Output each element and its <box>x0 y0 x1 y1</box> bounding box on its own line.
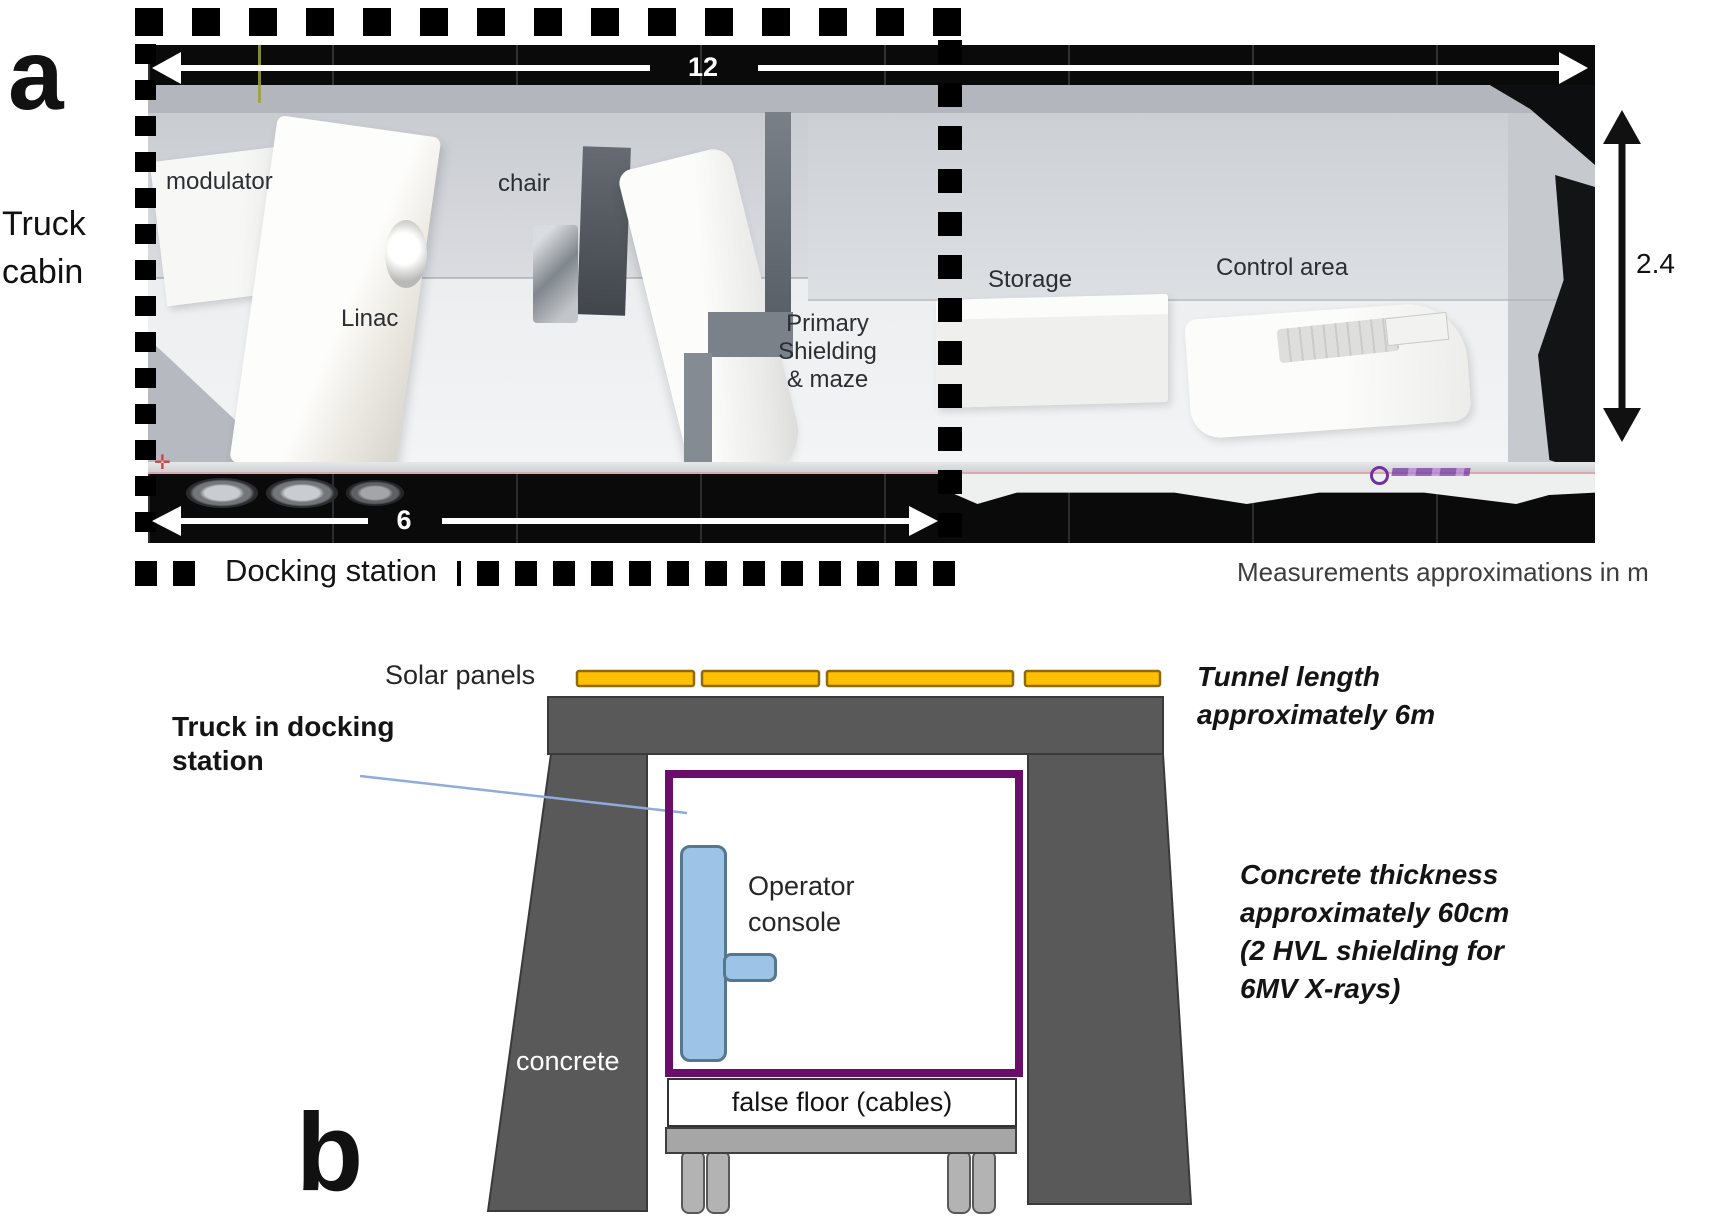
solar-panels-label: Solar panels <box>385 660 535 691</box>
operator-console-desk <box>723 953 777 982</box>
concrete-left-column <box>488 754 647 1211</box>
concrete-note-line-4: 6MV X-rays) <box>1240 973 1400 1004</box>
photo-black-top-bar <box>148 45 1595 85</box>
dim-2-4-label: 2.4 <box>1636 248 1675 280</box>
tunnel-note-line-1: Tunnel length <box>1197 661 1380 692</box>
panel-b-letter: b <box>296 1098 363 1208</box>
viewport-axis-artifact <box>258 45 261 103</box>
label-linac: Linac <box>341 305 398 333</box>
b-wheel-3 <box>947 1150 971 1214</box>
shielding-line-2: Shielding <box>778 338 877 365</box>
concrete-right-column <box>1028 754 1191 1204</box>
operator-console-shape <box>680 845 727 1062</box>
solar-panel-1 <box>577 671 694 686</box>
truck-cabin-line-1: Truck <box>2 205 86 243</box>
docking-dash-left <box>135 8 156 548</box>
truck-chassis-strip <box>148 462 1595 543</box>
right-room-wall <box>808 113 1508 301</box>
shielding-line-1: Primary <box>786 310 869 337</box>
label-modulator: modulator <box>166 168 273 196</box>
docking-station-label: Docking station <box>205 553 457 589</box>
concrete-note-line-1: Concrete thickness <box>1240 859 1498 890</box>
b-wheel-1 <box>681 1150 705 1214</box>
truck-wheel-3 <box>346 480 404 506</box>
docking-dash-top <box>135 8 968 36</box>
tunnel-note-line-2: approximately 6m <box>1197 699 1435 730</box>
truck-in-docking-label: Truck in docking station <box>172 710 394 778</box>
dim-12-label: 12 <box>676 52 730 83</box>
operator-console-label: Operator console <box>748 868 855 940</box>
measurements-note: Measurements approximations in m <box>1237 557 1649 588</box>
right-wall-edge-line <box>808 299 1595 301</box>
false-floor-label: false floor (cables) <box>732 1087 953 1118</box>
docking-dash-right <box>938 40 962 548</box>
operator-console-line-2: console <box>748 907 841 937</box>
truck-wheel-2 <box>266 478 338 508</box>
storage-box <box>936 294 1168 408</box>
ceiling-band <box>148 85 1595 113</box>
label-primary-shielding: Primary Shielding & maze <box>760 310 895 394</box>
concrete-note-line-2: approximately 60cm <box>1240 897 1509 928</box>
truck-top-view-photo: modulator chair Linac Primary Shielding … <box>148 45 1595 543</box>
solar-panel-2 <box>702 671 819 686</box>
truck-in-docking-line-2: station <box>172 745 264 776</box>
concrete-lintel <box>548 697 1163 754</box>
false-floor-box: false floor (cables) <box>667 1078 1017 1127</box>
treatment-chair <box>533 225 578 323</box>
b-wheel-2 <box>706 1150 730 1214</box>
shielding-line-3: & maze <box>787 366 868 393</box>
viewport-cursor-artifact: ✛ <box>154 453 171 473</box>
figure-mobile-radiotherapy-truck: modulator chair Linac Primary Shielding … <box>0 0 1725 1220</box>
truck-cabin-line-2: cabin <box>2 253 83 291</box>
truck-wheel-1 <box>186 478 258 508</box>
concrete-note-line-3: (2 HVL shielding for <box>1240 935 1504 966</box>
operator-console-line-1: Operator <box>748 871 855 901</box>
solar-panel-3 <box>827 671 1013 686</box>
label-chair: chair <box>498 170 550 198</box>
truck-cabin-label: Truck cabin <box>2 200 86 296</box>
solar-panel-4 <box>1025 671 1160 686</box>
truck-in-docking-line-1: Truck in docking <box>172 711 394 742</box>
panel-a-letter: a <box>8 25 64 125</box>
linac-port <box>385 220 427 288</box>
truck-logo-text-shape <box>1391 468 1470 476</box>
b-wheel-4 <box>972 1150 996 1214</box>
truck-pointer-line <box>360 776 687 813</box>
tunnel-length-note: Tunnel length approximately 6m <box>1197 658 1435 734</box>
dim-6-label: 6 <box>368 505 440 536</box>
concrete-label: concrete <box>516 1046 620 1077</box>
primary-shielding-wall <box>765 112 791 312</box>
label-storage: Storage <box>988 266 1072 294</box>
maze-wall-lower <box>684 353 712 462</box>
concrete-thickness-note: Concrete thickness approximately 60cm (2… <box>1240 856 1509 1008</box>
label-control-area: Control area <box>1216 254 1348 282</box>
truck-undercarriage-shelf <box>665 1127 1017 1154</box>
truck-logo <box>1370 466 1389 485</box>
solar-panel-bars <box>577 671 1160 686</box>
truck-interior-render: modulator chair Linac Primary Shielding … <box>148 85 1595 462</box>
